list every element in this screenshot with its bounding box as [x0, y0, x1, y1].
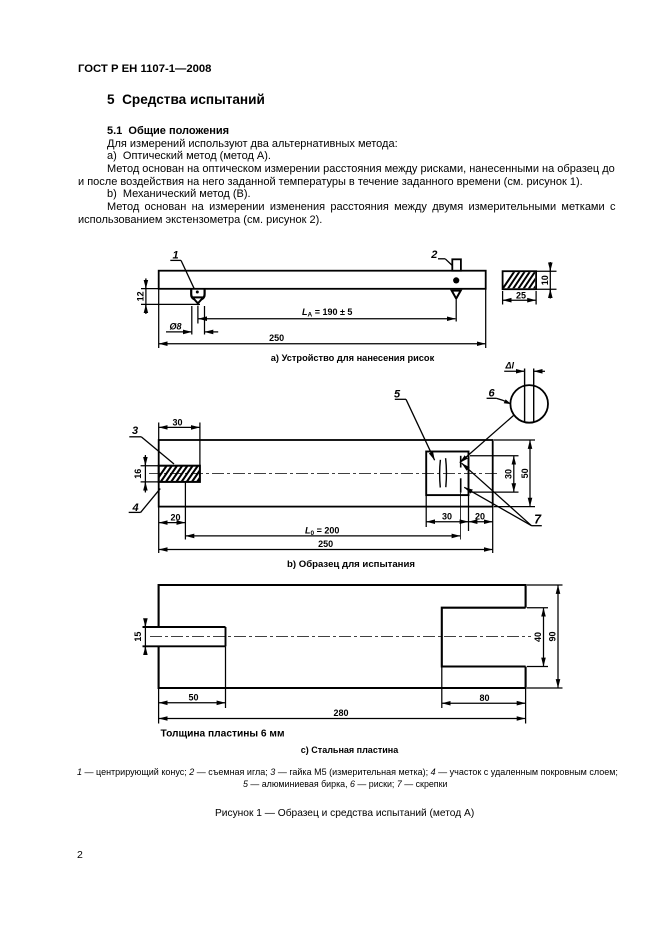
svg-text:Ø8: Ø8 [169, 321, 181, 331]
svg-text:30: 30 [172, 417, 182, 427]
svg-text:b) Образец для испытания: b) Образец для испытания [287, 559, 415, 570]
svg-text:Толщина пластины 6 мм: Толщина пластины 6 мм [161, 729, 285, 740]
svg-text:LA = 190 ± 5: LA = 190 ± 5 [302, 307, 352, 319]
svg-text:7: 7 [534, 513, 542, 527]
svg-text:30: 30 [442, 512, 452, 522]
svg-text:1: 1 [172, 250, 178, 262]
svg-text:50: 50 [520, 468, 530, 478]
svg-text:80: 80 [479, 693, 489, 703]
svg-text:250: 250 [269, 333, 284, 343]
svg-text:25: 25 [516, 291, 526, 301]
svg-text:16: 16 [133, 469, 143, 479]
svg-text:10: 10 [540, 275, 550, 285]
svg-text:2: 2 [430, 249, 437, 261]
svg-text:Δl: Δl [505, 360, 515, 370]
svg-text:40: 40 [533, 632, 543, 642]
svg-text:20: 20 [475, 512, 485, 522]
svg-text:90: 90 [548, 631, 558, 641]
svg-text:а) Устройство для нанесения ри: а) Устройство для нанесения рисок [271, 353, 435, 363]
svg-text:20: 20 [170, 513, 180, 523]
svg-text:3: 3 [132, 425, 138, 437]
svg-text:30: 30 [504, 469, 514, 479]
svg-text:с) Стальная пластина: с) Стальная пластина [301, 745, 399, 755]
svg-text:15: 15 [133, 632, 143, 642]
svg-text:50: 50 [188, 693, 198, 703]
svg-text:12: 12 [136, 291, 146, 301]
svg-text:280: 280 [333, 708, 348, 718]
svg-text:250: 250 [318, 539, 333, 549]
